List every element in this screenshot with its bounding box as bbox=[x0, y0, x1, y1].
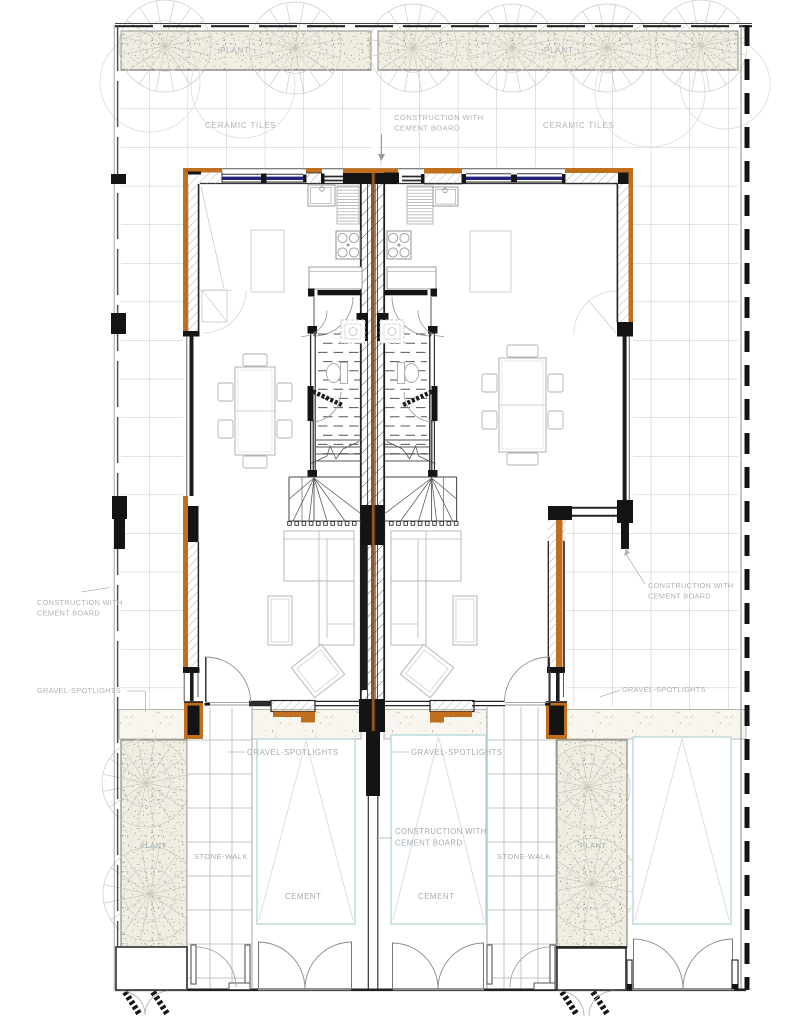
svg-text:GRAVEL-SPOTLIGHTS: GRAVEL-SPOTLIGHTS bbox=[37, 686, 121, 695]
svg-text:CONSTRUCTION WITH: CONSTRUCTION WITH bbox=[37, 598, 123, 607]
svg-text:PLANT: PLANT bbox=[220, 46, 250, 55]
svg-text:CEMENT: CEMENT bbox=[285, 892, 322, 901]
svg-text:CONSTRUCTION WITH: CONSTRUCTION WITH bbox=[395, 827, 487, 836]
svg-text:GRAVEL-SPOTLIGHTS: GRAVEL-SPOTLIGHTS bbox=[247, 748, 339, 757]
svg-text:CEMENT BOARD: CEMENT BOARD bbox=[648, 592, 711, 601]
svg-text:STONE-WALK: STONE-WALK bbox=[194, 852, 248, 861]
svg-text:PLANT: PLANT bbox=[580, 841, 606, 850]
svg-text:STONE-WALK: STONE-WALK bbox=[497, 852, 551, 861]
svg-text:CEMENT BOARD: CEMENT BOARD bbox=[37, 609, 100, 618]
svg-text:PLANT: PLANT bbox=[544, 46, 574, 55]
svg-text:PLANT: PLANT bbox=[140, 841, 166, 850]
svg-text:CEMENT: CEMENT bbox=[418, 892, 455, 901]
svg-text:CONSTRUCTION WITH: CONSTRUCTION WITH bbox=[394, 113, 483, 122]
svg-text:CERAMIC TILES: CERAMIC TILES bbox=[543, 121, 615, 130]
svg-text:GRAVEL-SPOTLIGHTS: GRAVEL-SPOTLIGHTS bbox=[411, 748, 503, 757]
svg-text:CERAMIC TILES: CERAMIC TILES bbox=[205, 121, 277, 130]
svg-text:CEMENT BOARD: CEMENT BOARD bbox=[394, 124, 460, 133]
svg-text:GRAVEL-SPOTLIGHTS: GRAVEL-SPOTLIGHTS bbox=[622, 685, 706, 694]
svg-text:CEMENT BOARD: CEMENT BOARD bbox=[395, 839, 462, 848]
svg-text:CONSTRUCTION WITH: CONSTRUCTION WITH bbox=[648, 581, 734, 590]
